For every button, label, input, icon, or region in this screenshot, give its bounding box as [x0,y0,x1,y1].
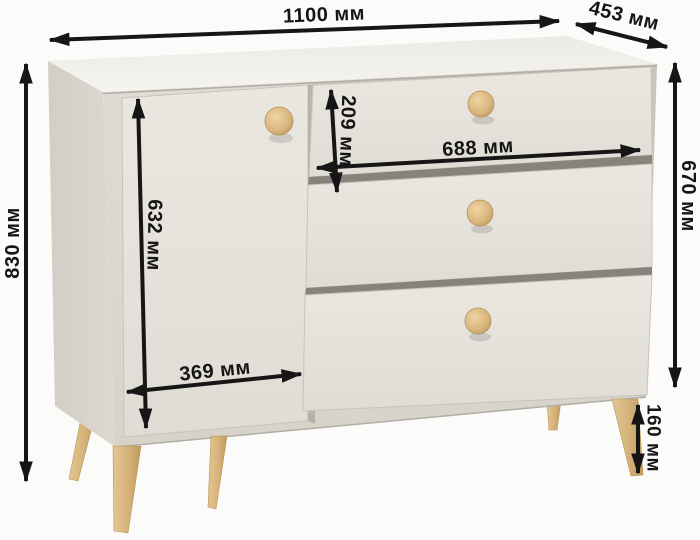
dim-depth: 453 мм [576,0,667,47]
dim-drawer-front-height-label: 209 мм [335,95,359,167]
diagram-canvas: 1100 мм 453 мм 830 мм 670 мм 632 мм 369 … [0,0,700,540]
drawer-1-knob [468,91,494,117]
drawer-3-front [303,275,652,411]
dim-height: 830 мм [2,64,26,481]
door-knob [265,107,293,135]
dim-width: 1100 мм [50,2,559,40]
dim-door-height-label: 632 мм [142,199,165,271]
furniture-dimension-diagram: 1100 мм 453 мм 830 мм 670 мм 632 мм 369 … [0,0,700,540]
leg-front-middle [208,436,227,509]
drawer-2-knob [467,200,493,226]
drawer-3-knob [465,308,491,334]
leg-front-left [113,446,141,533]
dim-drawer-section-height-label: 670 мм [677,160,699,232]
dim-width-label: 1100 мм [283,2,366,27]
dim-leg-height-label: 160 мм [643,404,664,472]
dim-height-label: 830 мм [2,207,24,279]
dim-drawer-width-label: 688 мм [442,135,515,161]
dim-drawer-section-height: 670 мм [675,63,699,387]
